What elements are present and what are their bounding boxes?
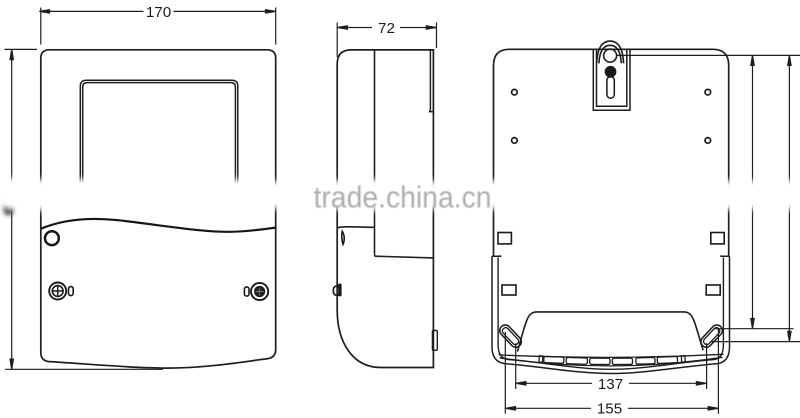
svg-text:72: 72 — [378, 20, 395, 37]
svg-text:170: 170 — [146, 4, 171, 21]
svg-text:trade.china.cn: trade.china.cn — [314, 181, 492, 215]
svg-text:155: 155 — [597, 400, 622, 417]
svg-text:137: 137 — [598, 376, 623, 393]
